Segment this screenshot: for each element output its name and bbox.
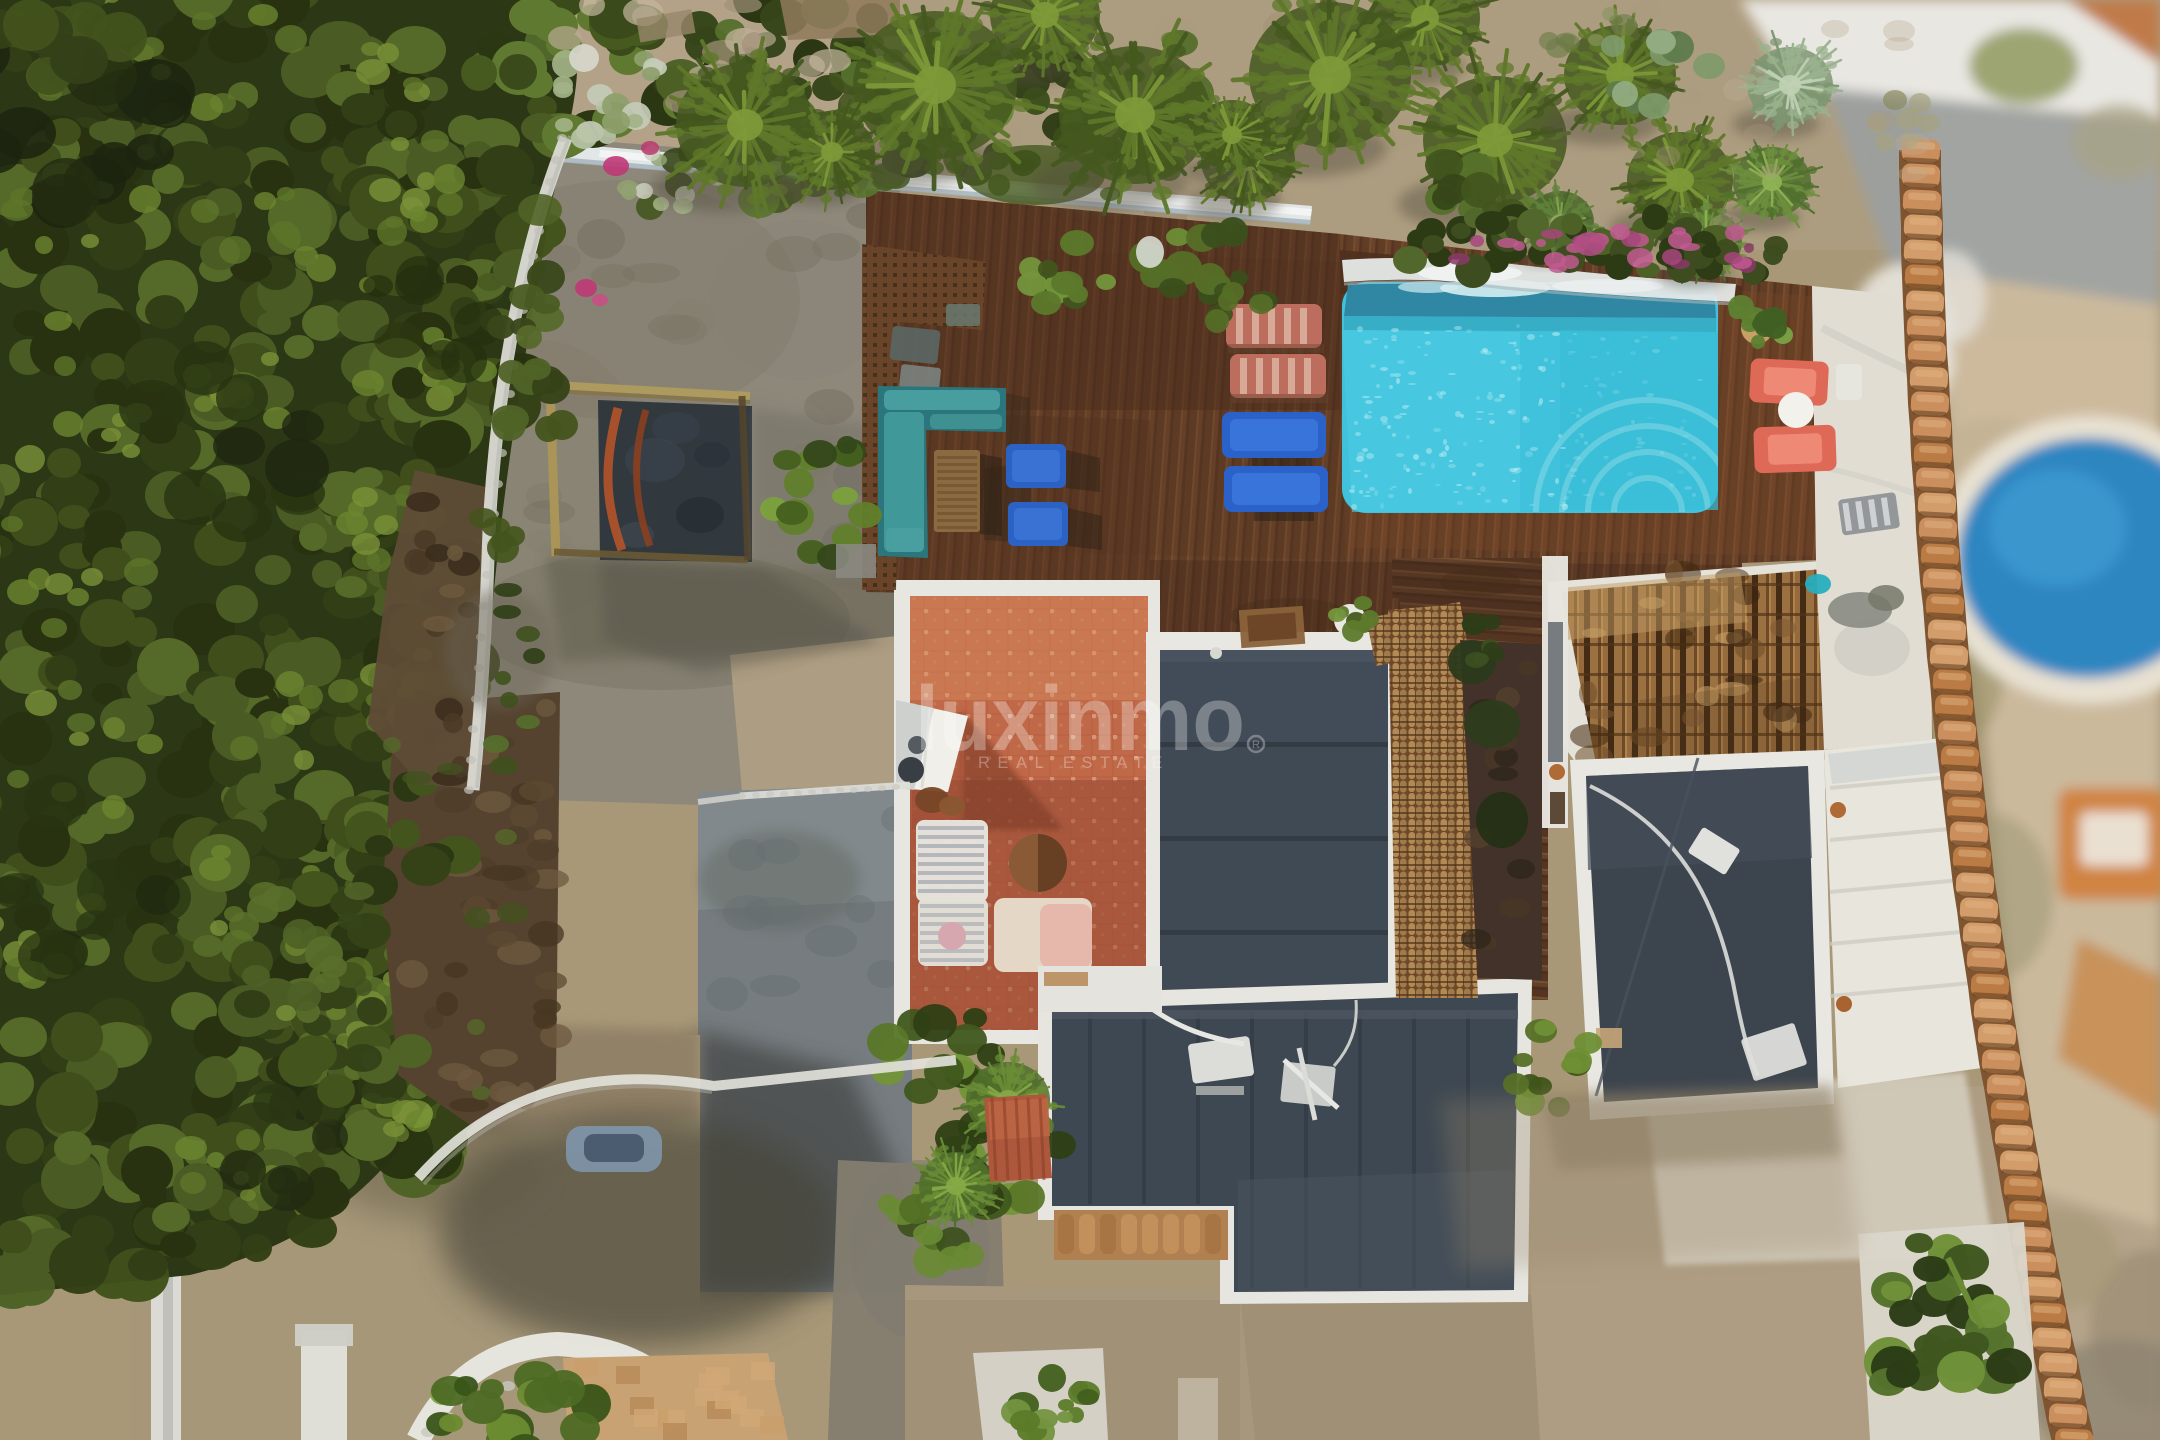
svg-text:REAL ESTATE: REAL ESTATE [978, 753, 1170, 772]
svg-text:R: R [1252, 739, 1260, 751]
